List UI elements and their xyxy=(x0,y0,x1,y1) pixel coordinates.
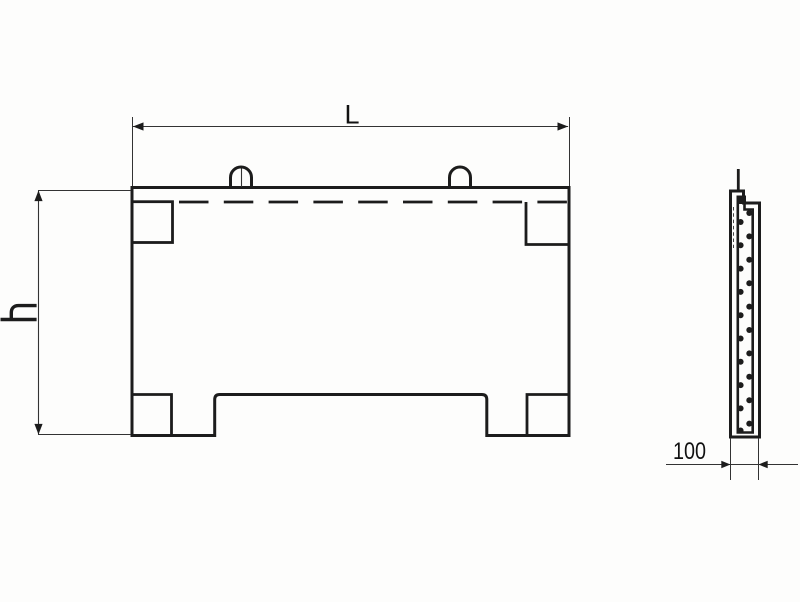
svg-text:100: 100 xyxy=(673,438,706,465)
svg-text:L: L xyxy=(344,100,359,130)
